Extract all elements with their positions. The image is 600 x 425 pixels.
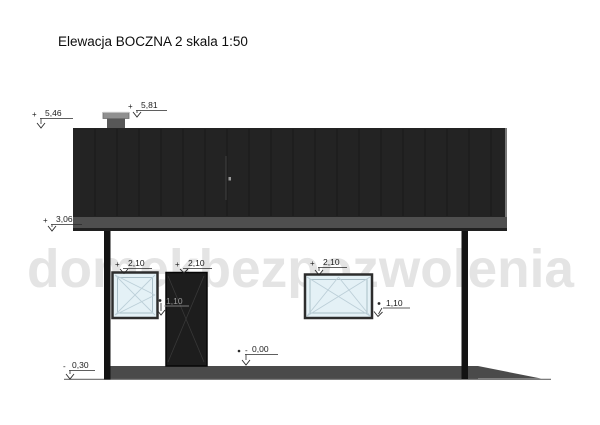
marker-dot (159, 299, 162, 302)
chimney-cap (103, 113, 129, 119)
marker-value: 2,10 (323, 257, 340, 267)
marker-value: 0,00 (252, 344, 269, 354)
fascia (73, 217, 507, 228)
marker-value: 2,10 (188, 258, 205, 268)
roof (73, 128, 507, 231)
marker-sign: + (32, 110, 37, 119)
marker-sign: + (175, 260, 180, 269)
marker-dot (238, 350, 241, 353)
marker-sign: + (115, 260, 120, 269)
level-marker-floor-level: - 0,00 (238, 344, 278, 365)
marker-value: 2,10 (128, 258, 145, 268)
right-column (462, 231, 469, 379)
left-column (104, 231, 111, 380)
plinth-slope-wedge (478, 366, 541, 379)
marker-value: 5,46 (45, 108, 62, 118)
marker-value: 0,30 (72, 360, 89, 370)
elevation-drawing-page: Elewacja BOCZNA 2 skala 1:50 domekbezpoz… (0, 0, 600, 425)
marker-sign: - (245, 346, 248, 355)
marker-value: 5,81 (141, 100, 158, 110)
entrance-door (166, 273, 207, 367)
marker-value: 1,10 (166, 296, 183, 306)
level-marker-roof-ridge: + 5,46 (32, 108, 73, 128)
marker-sign: - (63, 362, 66, 371)
marker-sign: + (43, 216, 48, 225)
marker-sign: + (310, 259, 315, 268)
roof-plane (73, 128, 507, 217)
marker-value: 1,10 (386, 298, 403, 308)
elevation-drawing: Elewacja BOCZNA 2 skala 1:50 domekbezpoz… (0, 0, 600, 425)
fascia-bottom-edge (73, 228, 507, 231)
roof-vent-mark (229, 177, 232, 181)
plinth-band (105, 366, 478, 379)
marker-dot (378, 302, 381, 305)
plinth (105, 366, 541, 379)
level-marker-ground-level: - 0,30 (63, 360, 95, 379)
left-window (113, 273, 158, 319)
level-marker-right-window-sill: 1,10 (374, 298, 410, 317)
marker-sign: + (128, 102, 133, 111)
marker-value: 3,06 (56, 214, 73, 224)
drawing-title: Elewacja BOCZNA 2 skala 1:50 (58, 34, 248, 49)
level-marker-chimney-top: + 5,81 (128, 100, 167, 117)
right-window (305, 275, 372, 319)
